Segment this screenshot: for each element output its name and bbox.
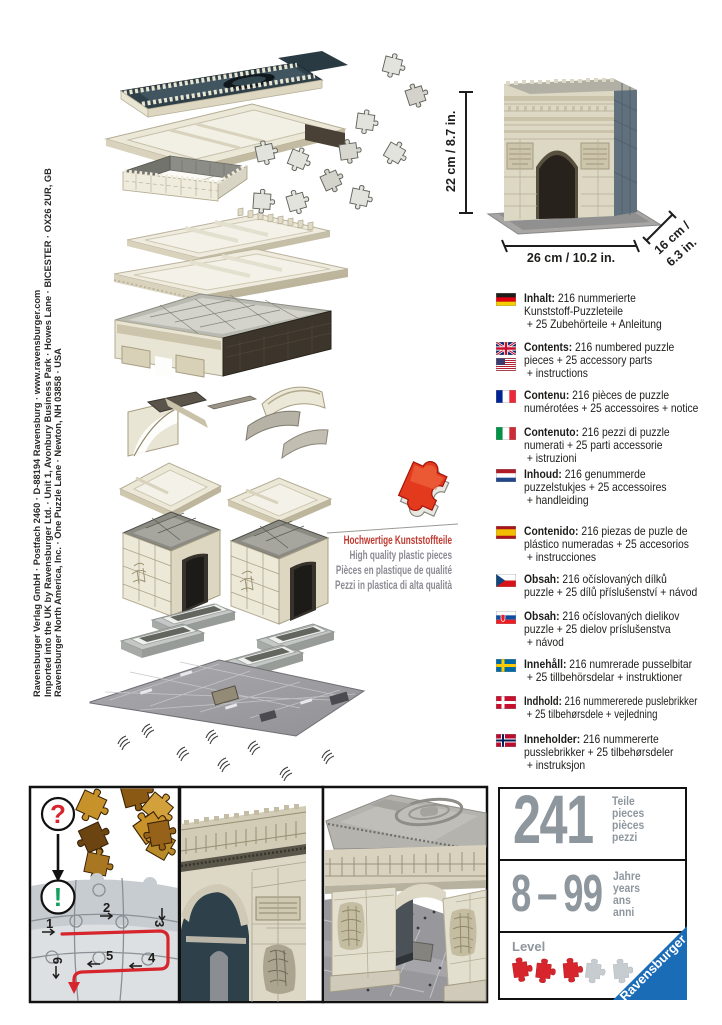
svg-text:?: ? [50,799,66,829]
svg-text:4: 4 [148,950,156,965]
svg-text:1: 1 [46,916,53,931]
svg-text:5: 5 [106,948,113,963]
svg-text:26 cm / 10.2 in.: 26 cm / 10.2 in. [527,251,615,265]
svg-text:6: 6 [50,957,65,964]
svg-text:!: ! [54,882,63,912]
svg-text:3: 3 [152,920,167,927]
svg-text:2: 2 [103,900,110,915]
svg-text:22 cm / 8.7 in.: 22 cm / 8.7 in. [444,111,458,192]
